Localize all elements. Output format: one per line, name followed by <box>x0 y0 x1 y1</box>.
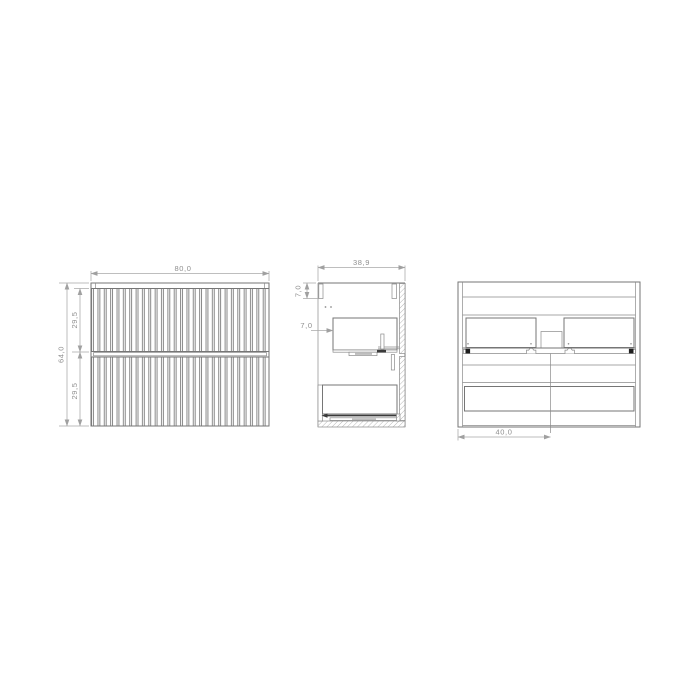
front-width-dimension: 80,0 <box>91 264 269 281</box>
front-lower-drawer-label: 29,5 <box>70 383 79 400</box>
technical-drawing: 80,0 64,0 29,5 29,5 <box>0 0 700 700</box>
side-bottom-panel <box>318 421 405 427</box>
front-middle-recess <box>94 353 267 356</box>
front-view: 80,0 64,0 29,5 29,5 <box>57 264 270 426</box>
rear-center-dimension: 40,0 <box>458 428 551 441</box>
front-top-rail <box>91 283 269 289</box>
rear-lower-drawer-back <box>465 387 635 412</box>
side-depth-label: 38,9 <box>353 258 370 267</box>
rear-upper-drawer-back-right <box>564 318 634 348</box>
front-height-label: 64,0 <box>57 346 66 363</box>
front-upper-drawer-fluted-panel <box>91 289 269 352</box>
side-front-offset-label: 7,0 <box>300 321 312 330</box>
side-back-panel-lower <box>400 357 406 421</box>
front-upper-drawer-dimension: 29,5 <box>70 289 89 353</box>
side-top-rail-dimension: 7,0 <box>294 283 319 299</box>
side-screw-dot <box>330 306 332 308</box>
rear-center-label: 40,0 <box>496 428 513 437</box>
side-section-view: 38,9 7,0 7,0 <box>294 258 406 427</box>
side-upper-drawer <box>333 318 400 370</box>
side-front-rail-section <box>319 284 323 299</box>
front-lower-drawer-dimension: 29,5 <box>70 352 80 426</box>
front-upper-drawer-label: 29,5 <box>70 312 79 329</box>
side-top-rail-label: 7,0 <box>294 285 303 297</box>
side-depth-dimension: 38,9 <box>318 258 405 281</box>
side-screw-dot <box>325 306 327 308</box>
side-lower-drawer <box>318 385 400 421</box>
front-width-label: 80,0 <box>175 264 192 273</box>
rear-view: 40,0 <box>458 282 640 441</box>
front-height-dimension: 64,0 <box>57 283 90 426</box>
technical-drawing-page: 80,0 64,0 29,5 29,5 <box>0 0 700 700</box>
rear-center-connector <box>541 332 562 349</box>
rear-upper-drawer-back-left <box>466 318 536 348</box>
front-lower-drawer-fluted-panel <box>91 357 269 426</box>
side-back-panel-upper <box>400 284 406 354</box>
side-front-offset-dimension: 7,0 <box>300 321 333 331</box>
side-rear-rail-section <box>392 284 397 299</box>
